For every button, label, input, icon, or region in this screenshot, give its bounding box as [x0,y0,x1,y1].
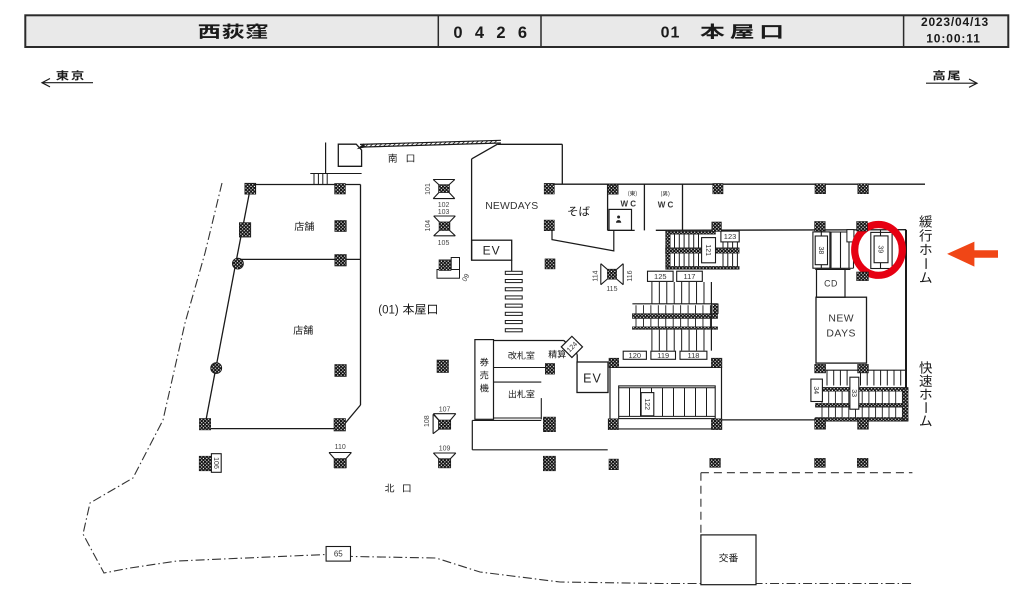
svg-text:33: 33 [850,389,857,397]
svg-text:0: 0 [453,24,462,42]
svg-text:4: 4 [475,24,485,42]
svg-text:103: 103 [438,209,450,216]
svg-text:114: 114 [592,270,599,281]
svg-text:116: 116 [627,270,634,281]
svg-text:EV: EV [483,244,501,258]
svg-text:109: 109 [439,445,451,452]
svg-text:DAYS: DAYS [826,329,856,340]
svg-text:110: 110 [335,444,346,451]
svg-text:106: 106 [212,457,219,469]
svg-text:108: 108 [424,415,431,427]
svg-text:EV: EV [583,372,602,386]
svg-text:115: 115 [606,286,617,293]
svg-text:10:00:11: 10:00:11 [926,32,981,46]
svg-text:105: 105 [438,240,450,247]
svg-text:2: 2 [496,24,505,42]
svg-text:102: 102 [438,202,450,209]
svg-text:123: 123 [724,232,737,241]
svg-text:W C: W C [658,200,674,209]
svg-text:117: 117 [684,272,696,281]
svg-text:104: 104 [425,220,432,232]
svg-text:CD: CD [824,279,838,289]
svg-text:NEWDAYS: NEWDAYS [485,201,538,212]
svg-text:65: 65 [334,550,343,559]
svg-text:W C: W C [621,200,637,209]
svg-text:122: 122 [643,398,650,410]
svg-text:101: 101 [425,183,432,195]
svg-text:125: 125 [654,272,667,281]
svg-text:01: 01 [661,25,681,42]
svg-text:38: 38 [817,246,824,254]
svg-text:120: 120 [629,351,642,360]
svg-text:2023/04/13: 2023/04/13 [921,15,989,29]
svg-text:119: 119 [657,351,669,360]
svg-text:121: 121 [704,244,711,256]
svg-text:34: 34 [812,386,819,394]
svg-text:6: 6 [518,24,527,42]
svg-text:39: 39 [877,245,884,253]
svg-text:NEW: NEW [828,314,854,325]
svg-text:118: 118 [687,351,699,360]
svg-text:(01): (01) [378,305,399,317]
svg-text:107: 107 [439,406,451,413]
